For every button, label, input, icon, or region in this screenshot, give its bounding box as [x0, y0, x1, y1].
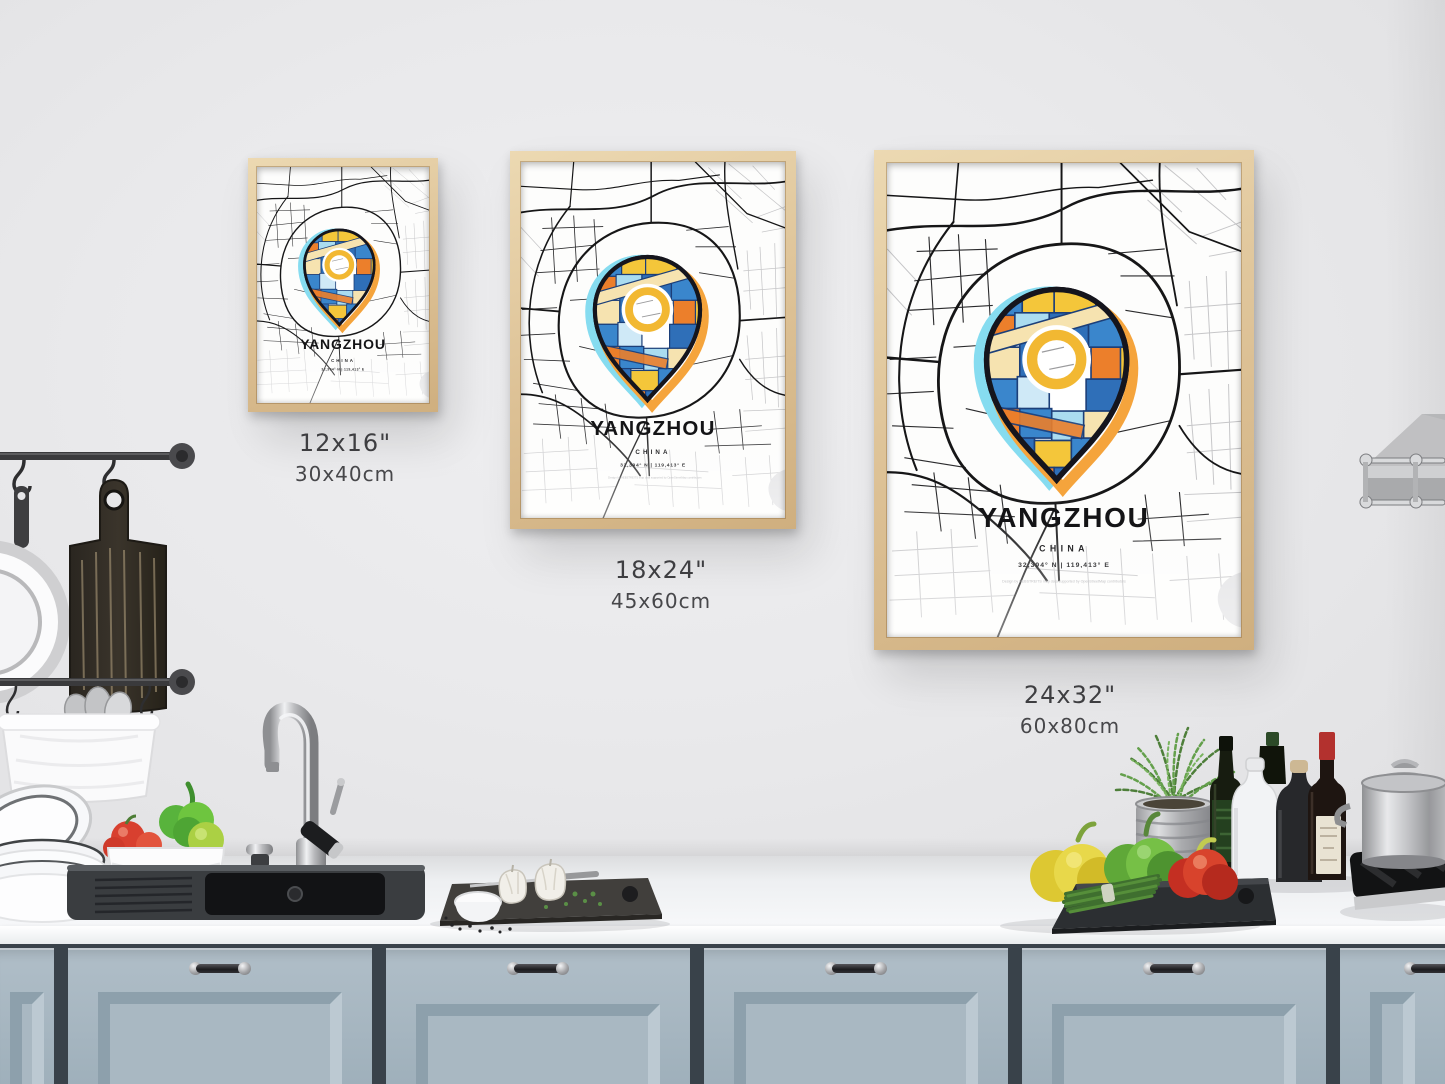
door-panel [1052, 1004, 1296, 1084]
cabinet-handle[interactable] [189, 962, 251, 975]
poster-print: YANGZHOU CHINA 32,394° N | 119,413° E [257, 167, 429, 403]
hanging-pan [0, 546, 64, 698]
cabinet-handle[interactable] [1143, 962, 1205, 975]
poster-text-block: YANGZHOU CHINA 32,394° N | 119,413° E De… [887, 502, 1241, 586]
poster-text-block: YANGZHOU CHINA 32,394° N | 119,413° E [257, 336, 429, 374]
kitchen-product-photo: YANGZHOU CHINA 32,394° N | 119,413° E YA… [0, 0, 1445, 1084]
cabinet-handle[interactable] [825, 962, 887, 975]
poster-frame-24x32: YANGZHOU CHINA 32,394° N | 119,413° E De… [874, 150, 1254, 650]
wine-bottle [1308, 732, 1346, 880]
hanging-cutting-board [70, 480, 166, 712]
handle-end [874, 962, 887, 975]
soap-dispenser [246, 844, 273, 867]
door-panel [416, 1004, 660, 1084]
door-panel [10, 992, 44, 1084]
handle-bar [196, 964, 244, 973]
cabinet-door[interactable] [68, 948, 372, 1084]
stock-pot [1337, 761, 1445, 869]
poster-print: YANGZHOU CHINA 32,394° N | 119,413° E De… [521, 162, 785, 518]
poster-attribution: Design by HEBSTREITS map data supported … [608, 476, 698, 479]
hanging-utensil [14, 486, 29, 548]
cabinet-door[interactable] [1340, 948, 1445, 1084]
kitchen-sink [67, 710, 425, 920]
cabinet-handle[interactable] [507, 962, 569, 975]
poster-country: CHINA [296, 358, 391, 363]
faucet [266, 710, 345, 880]
range-hood [1352, 414, 1445, 526]
poster-coordinates: 32,394° N | 119,413° E [580, 462, 725, 468]
door-panel [98, 992, 342, 1084]
utensil-rail-top [0, 443, 195, 469]
handle-end [238, 962, 251, 975]
poster-country: CHINA [922, 544, 1205, 554]
size-inches: 18x24" [551, 556, 771, 584]
poster-country: CHINA [571, 449, 735, 456]
poster-title: YANGZHOU [521, 417, 785, 441]
handle-bar [1411, 964, 1445, 973]
size-label-12x16: 12x16" 30x40cm [235, 429, 455, 486]
door-panel [1370, 992, 1415, 1084]
poster-attribution: Design by HEBSTREITS map data supported … [984, 579, 1143, 583]
handle-bar [832, 964, 880, 973]
cabinet-handle[interactable] [1404, 962, 1445, 975]
size-inches: 12x16" [235, 429, 455, 457]
size-label-18x24: 18x24" 45x60cm [551, 556, 771, 613]
cabinet-drawer[interactable] [386, 948, 690, 1084]
poster-title: YANGZHOU [257, 336, 429, 352]
cabinet-door[interactable] [704, 948, 1008, 1084]
handle-end [1192, 962, 1205, 975]
size-cm: 30x40cm [235, 462, 455, 486]
poster-title: YANGZHOU [887, 502, 1241, 534]
sink-drain [288, 887, 302, 901]
poster-coordinates: 32,394° N | 119,413° E [307, 367, 379, 371]
poster-frame-12x16: YANGZHOU CHINA 32,394° N | 119,413° E [248, 158, 438, 412]
counter-items [0, 688, 1445, 938]
handle-bar [514, 964, 562, 973]
handle-end [556, 962, 569, 975]
poster-coordinates: 32,394° N | 119,413° E [944, 562, 1185, 569]
poster-print: YANGZHOU CHINA 32,394° N | 119,413° E De… [887, 163, 1241, 637]
cabinet-row [0, 944, 1445, 1084]
handle-bar [1150, 964, 1198, 973]
door-panel [734, 992, 978, 1084]
cabinet-door[interactable] [0, 948, 54, 1084]
poster-text-block: YANGZHOU CHINA 32,394° N | 119,413° E De… [521, 417, 785, 482]
size-cm: 45x60cm [551, 589, 771, 613]
cabinet-drawer[interactable] [1022, 948, 1326, 1084]
poster-frame-18x24: YANGZHOU CHINA 32,394° N | 119,413° E De… [510, 151, 796, 529]
